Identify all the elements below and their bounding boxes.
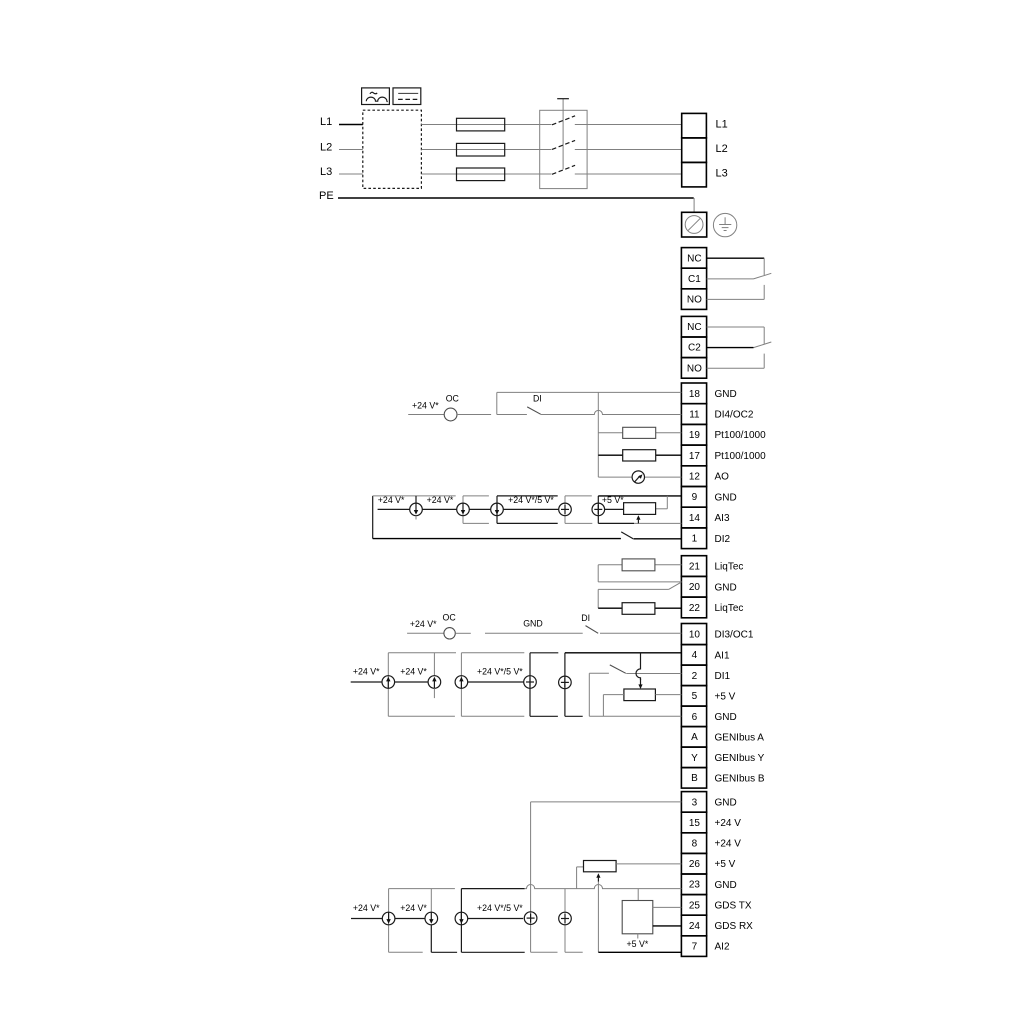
svg-text:L3: L3 <box>320 166 332 178</box>
svg-text:DI2: DI2 <box>715 534 731 545</box>
svg-text:GND: GND <box>523 619 543 629</box>
svg-text:+24 V*: +24 V* <box>400 903 427 913</box>
svg-text:+24 V*: +24 V* <box>353 667 380 677</box>
svg-text:24: 24 <box>689 921 701 932</box>
svg-text:8: 8 <box>692 839 698 850</box>
svg-text:25: 25 <box>689 900 701 911</box>
svg-text:NO: NO <box>687 295 702 306</box>
svg-text:21: 21 <box>689 562 701 573</box>
svg-text:11: 11 <box>689 409 700 420</box>
svg-text:+24 V*: +24 V* <box>412 400 439 410</box>
svg-text:GENIbus A: GENIbus A <box>715 732 765 743</box>
svg-text:NC: NC <box>687 253 701 264</box>
svg-text:+24 V*: +24 V* <box>410 619 437 629</box>
svg-text:L2: L2 <box>716 143 728 155</box>
svg-text:+5 V*: +5 V* <box>602 495 624 505</box>
svg-text:+24 V: +24 V <box>715 839 742 850</box>
svg-text:NC: NC <box>687 322 701 333</box>
svg-text:DI: DI <box>533 394 542 404</box>
svg-text:B: B <box>691 773 698 784</box>
svg-text:C2: C2 <box>688 343 701 354</box>
svg-text:7: 7 <box>692 942 698 953</box>
svg-text:19: 19 <box>689 430 701 441</box>
svg-text:+5 V: +5 V <box>715 859 736 870</box>
svg-text:12: 12 <box>689 472 701 483</box>
svg-text:GND: GND <box>715 797 737 808</box>
svg-text:AO: AO <box>715 472 730 483</box>
svg-text:AI3: AI3 <box>715 513 730 524</box>
svg-text:OC: OC <box>443 612 457 622</box>
svg-text:+24 V*/5 V*: +24 V*/5 V* <box>508 495 554 505</box>
svg-text:+24 V*: +24 V* <box>378 495 405 505</box>
svg-text:DI1: DI1 <box>715 671 731 682</box>
svg-text:GND: GND <box>715 712 737 723</box>
svg-text:GDS RX: GDS RX <box>715 921 754 932</box>
svg-text:+24 V: +24 V <box>715 818 742 829</box>
svg-text:2: 2 <box>692 671 698 682</box>
svg-text:GND: GND <box>715 582 737 593</box>
svg-text:15: 15 <box>689 818 701 829</box>
svg-text:PE: PE <box>319 190 334 202</box>
svg-text:6: 6 <box>692 712 698 723</box>
svg-text:+24 V*/5 V*: +24 V*/5 V* <box>477 667 523 677</box>
svg-text:22: 22 <box>689 603 701 614</box>
svg-text:5: 5 <box>692 691 698 702</box>
svg-text:GENIbus B: GENIbus B <box>715 773 765 784</box>
svg-text:17: 17 <box>689 451 701 462</box>
svg-text:GENIbus Y: GENIbus Y <box>715 753 765 764</box>
svg-text:L1: L1 <box>716 119 728 131</box>
svg-text:DI4/OC2: DI4/OC2 <box>715 410 754 421</box>
svg-text:+24 V*: +24 V* <box>400 667 427 677</box>
svg-text:Y: Y <box>691 753 698 764</box>
svg-text:+5 V: +5 V <box>715 691 736 702</box>
svg-text:20: 20 <box>689 582 701 593</box>
svg-text:4: 4 <box>692 650 698 661</box>
svg-text:23: 23 <box>689 880 701 891</box>
svg-text:LiqTec: LiqTec <box>715 562 744 573</box>
svg-text:DI3/OC1: DI3/OC1 <box>715 630 754 641</box>
svg-text:L1: L1 <box>320 116 332 128</box>
svg-text:L3: L3 <box>716 168 728 180</box>
svg-text:NO: NO <box>687 363 702 374</box>
svg-text:AI2: AI2 <box>715 942 730 953</box>
svg-text:AI1: AI1 <box>715 650 730 661</box>
svg-text:9: 9 <box>692 492 698 503</box>
svg-text:+5 V*: +5 V* <box>627 939 649 949</box>
svg-text:3: 3 <box>692 797 698 808</box>
svg-text:GND: GND <box>715 492 737 503</box>
svg-text:GND: GND <box>715 389 737 400</box>
svg-text:Pt100/1000: Pt100/1000 <box>715 430 767 441</box>
svg-text:14: 14 <box>689 513 701 524</box>
svg-text:GND: GND <box>715 880 737 891</box>
svg-text:OC: OC <box>446 394 460 404</box>
svg-text:+24 V*: +24 V* <box>353 903 380 913</box>
svg-text:LiqTec: LiqTec <box>715 603 744 614</box>
svg-text:10: 10 <box>689 629 701 640</box>
svg-text:C1: C1 <box>688 274 701 285</box>
svg-text:26: 26 <box>689 859 701 870</box>
svg-text:+24 V*/5 V*: +24 V*/5 V* <box>477 903 523 913</box>
svg-text:18: 18 <box>689 389 701 400</box>
svg-text:A: A <box>691 732 698 743</box>
svg-text:DI: DI <box>581 613 590 623</box>
svg-text:1: 1 <box>692 534 698 545</box>
svg-text:L2: L2 <box>320 141 332 153</box>
svg-text:Pt100/1000: Pt100/1000 <box>715 451 767 462</box>
svg-text:GDS TX: GDS TX <box>715 900 752 911</box>
svg-text:+24 V*: +24 V* <box>427 495 454 505</box>
